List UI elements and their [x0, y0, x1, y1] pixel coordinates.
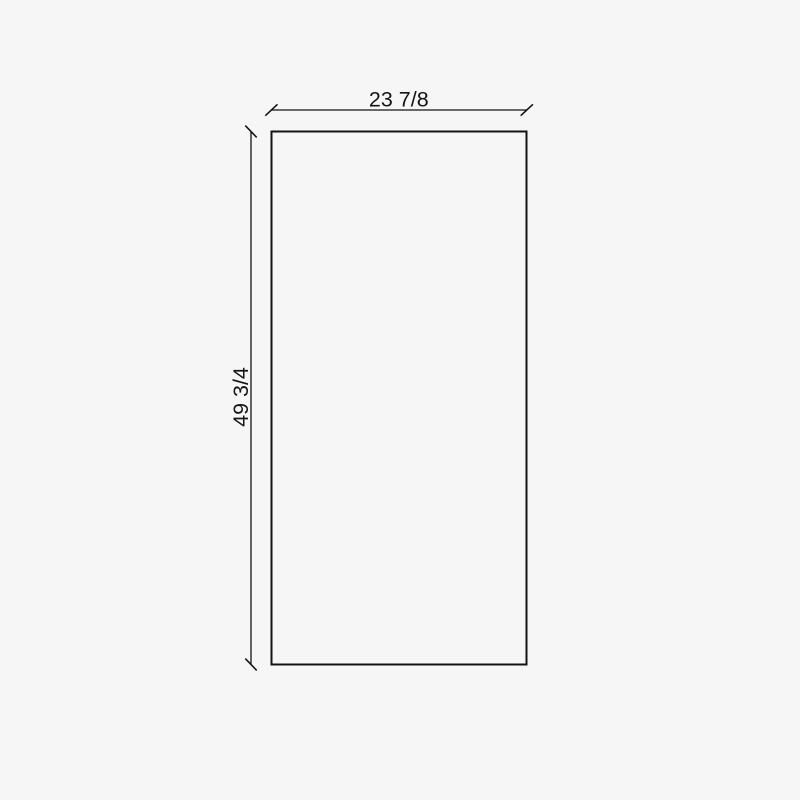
svg-text:23 7/8: 23 7/8: [369, 88, 429, 112]
svg-text:49 3/4: 49 3/4: [229, 367, 253, 427]
